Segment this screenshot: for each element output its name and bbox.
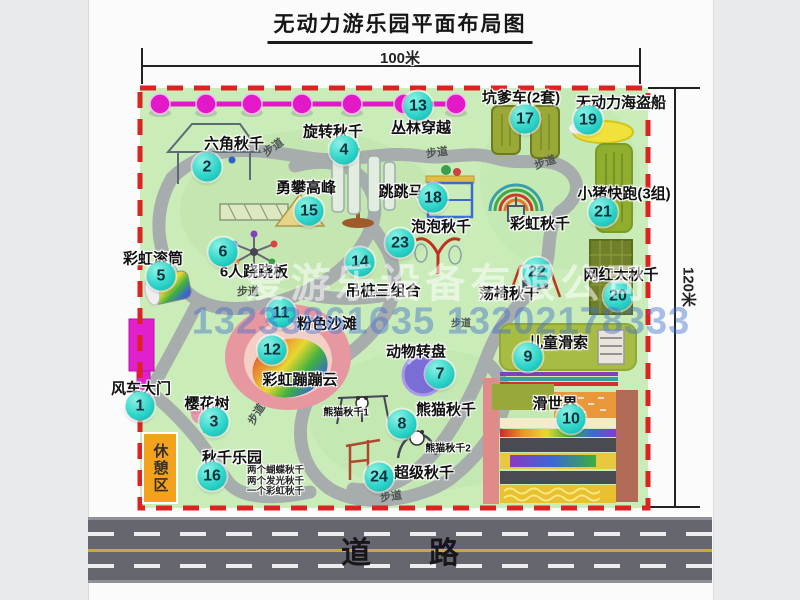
badge-9: 9 bbox=[514, 343, 543, 372]
label-animal-carousel: 动物转盘 bbox=[386, 341, 446, 362]
badge-10: 10 bbox=[557, 405, 586, 434]
badge-13: 13 bbox=[404, 92, 433, 121]
label-rainbow-cloud: 彩虹蹦蹦云 bbox=[262, 369, 337, 390]
badge-21: 21 bbox=[589, 198, 618, 227]
watermark-phone-numbers: 13233861635 13202178333 bbox=[192, 301, 691, 344]
road-label: 道路 bbox=[283, 528, 517, 572]
rest-area: 休憩区 bbox=[142, 432, 178, 504]
label-hexagon-swing: 六角秋千 bbox=[204, 133, 264, 154]
badge-3: 3 bbox=[200, 408, 229, 437]
swing-park-detail-line: 两个蝴蝶秋千 bbox=[247, 466, 304, 477]
badge-1: 1 bbox=[126, 392, 155, 421]
label-climbing-peak: 勇攀高峰 bbox=[276, 177, 336, 198]
badge-15: 15 bbox=[295, 197, 324, 226]
label-rainbow-swing: 彩虹秋千 bbox=[510, 213, 570, 234]
badge-5: 5 bbox=[147, 262, 176, 291]
page-title: 无动力游乐园平面布局图 bbox=[268, 8, 533, 44]
label-panda-swing: 熊猫秋千 bbox=[416, 399, 476, 420]
label-panda-swing-2: 熊猫秋千2 bbox=[425, 440, 471, 455]
badge-24: 24 bbox=[365, 463, 394, 492]
swing-park-details: 两个蝴蝶秋千 两个发光秋千 一个彩虹秋千 bbox=[247, 466, 304, 498]
badge-6: 6 bbox=[209, 238, 238, 267]
label-panda-swing-1: 熊猫秋千1 bbox=[323, 404, 369, 419]
badge-7: 7 bbox=[426, 360, 455, 389]
label-pig-run: 小猪快跑(3组) bbox=[577, 183, 670, 204]
badge-4: 4 bbox=[330, 136, 359, 165]
road: 道路 bbox=[88, 517, 712, 583]
badge-16: 16 bbox=[198, 462, 227, 491]
label-jumping-horse: 跳跳马 bbox=[378, 181, 423, 202]
badge-18: 18 bbox=[419, 184, 448, 213]
label-bubble-swing: 泡泡秋千 bbox=[411, 216, 471, 237]
badge-2: 2 bbox=[193, 153, 222, 182]
label-rotating-swing: 旋转秋千 bbox=[303, 121, 363, 142]
walkway-label: 步道 bbox=[425, 143, 449, 162]
badge-17: 17 bbox=[511, 105, 540, 134]
badge-8: 8 bbox=[388, 410, 417, 439]
dimension-width-label: 100米 bbox=[380, 47, 420, 68]
dimension-height-label: 120米 bbox=[679, 267, 700, 307]
label-super-swing: 超级秋千 bbox=[394, 462, 454, 483]
badge-19: 19 bbox=[574, 106, 603, 135]
swing-park-detail-line: 一个彩虹秋千 bbox=[247, 487, 304, 498]
